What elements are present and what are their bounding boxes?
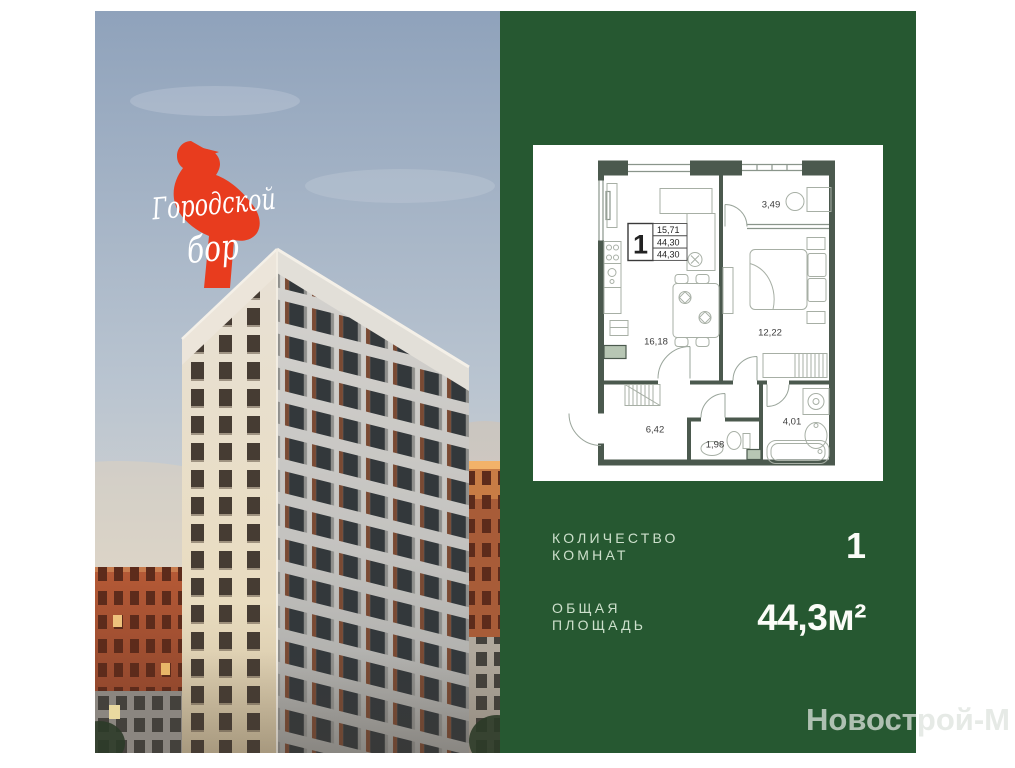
area-bathroom: 4,01 <box>783 417 802 428</box>
spec-area-label-line1: ОБЩАЯ <box>552 600 646 617</box>
area-bedroom: 12,22 <box>758 328 782 339</box>
plan-stat-total: 44,30 <box>657 237 680 247</box>
floor-plan: 3,49 16,18 12,22 6,42 1,98 4,01 1 <box>533 145 883 481</box>
spec-total-area: ОБЩАЯ ПЛОЩАДЬ 44,3м² <box>552 600 866 636</box>
spec-area-label-line2: ПЛОЩАДЬ <box>552 617 646 634</box>
listing-card: Городской бор <box>0 0 1015 768</box>
spec-area-value: 44,3м² <box>757 599 866 636</box>
spec-rooms-label-line2: КОМНАТ <box>552 547 679 564</box>
area-wc: 1,98 <box>706 440 725 451</box>
area-hallway: 6,42 <box>646 425 665 436</box>
info-panel: 3,49 16,18 12,22 6,42 1,98 4,01 1 <box>500 11 916 753</box>
plan-stat-living: 15,71 <box>657 225 680 235</box>
building-photo-render: Городской бор <box>95 11 500 753</box>
spec-area-label: ОБЩАЯ ПЛОЩАДЬ <box>552 600 646 634</box>
spec-rooms-label: КОЛИЧЕСТВО КОМНАТ <box>552 530 679 564</box>
spec-rooms-value: 1 <box>846 528 866 564</box>
floor-plan-card: 3,49 16,18 12,22 6,42 1,98 4,01 1 <box>533 145 883 481</box>
area-kitchen-living: 16,18 <box>644 337 668 348</box>
plan-stat-reduced: 44,30 <box>657 250 680 260</box>
plan-info-box: 1 15,71 44,30 44,30 <box>628 224 687 261</box>
spec-rooms-label-line1: КОЛИЧЕСТВО <box>552 530 679 547</box>
building-photo: Городской бор <box>95 11 500 753</box>
watermark: Новострой-М <box>806 702 1010 738</box>
logo-line2: бор <box>185 227 240 272</box>
spec-rooms-count: КОЛИЧЕСТВО КОМНАТ 1 <box>552 530 866 564</box>
plan-rooms-badge: 1 <box>633 230 648 260</box>
area-loggia: 3,49 <box>762 200 781 211</box>
vent-shafts <box>604 346 761 460</box>
